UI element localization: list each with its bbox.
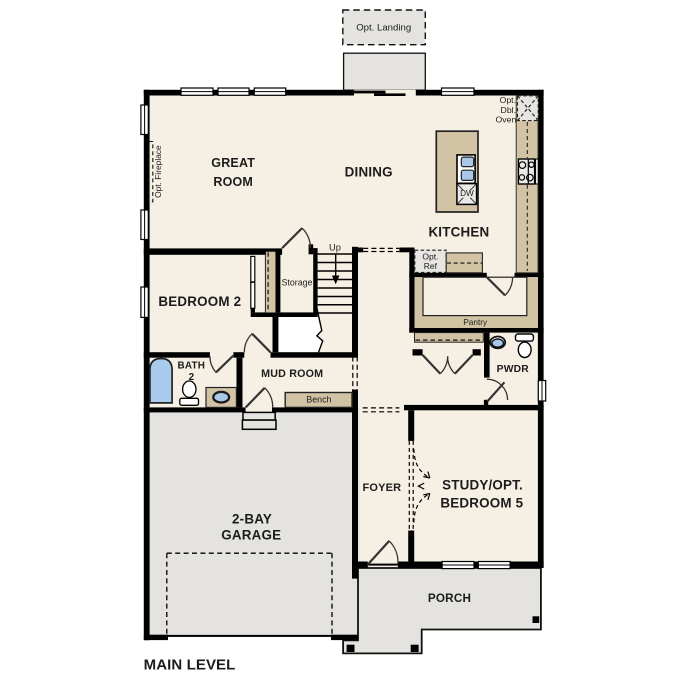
svg-text:DINING: DINING — [345, 164, 393, 179]
svg-text:FOYER: FOYER — [362, 482, 401, 494]
svg-text:MAIN LEVEL: MAIN LEVEL — [144, 657, 236, 674]
svg-text:GREAT: GREAT — [211, 156, 255, 170]
svg-text:BATH: BATH — [178, 360, 206, 371]
svg-text:Opt. Fireplace: Opt. Fireplace — [153, 145, 163, 198]
svg-text:Oven: Oven — [496, 115, 517, 125]
svg-text:Ref: Ref — [424, 261, 438, 271]
svg-text:BEDROOM 5: BEDROOM 5 — [440, 495, 523, 510]
svg-text:GARAGE: GARAGE — [221, 527, 281, 542]
svg-text:Opt.: Opt. — [422, 251, 438, 261]
svg-text:2: 2 — [189, 372, 195, 383]
svg-text:Bench: Bench — [306, 394, 331, 404]
svg-text:Opt.: Opt. — [500, 95, 516, 105]
svg-text:MUD ROOM: MUD ROOM — [261, 368, 323, 380]
svg-text:STUDY/OPT.: STUDY/OPT. — [442, 478, 523, 493]
svg-text:Opt. Landing: Opt. Landing — [356, 23, 411, 34]
svg-text:KITCHEN: KITCHEN — [428, 225, 489, 240]
svg-text:ROOM: ROOM — [213, 175, 253, 189]
svg-text:Up: Up — [329, 242, 341, 252]
svg-text:Pantry: Pantry — [463, 317, 488, 327]
svg-text:DW: DW — [460, 189, 474, 198]
svg-text:PWDR: PWDR — [497, 364, 530, 375]
svg-text:Dbl.: Dbl. — [501, 105, 516, 115]
svg-text:PORCH: PORCH — [428, 592, 471, 605]
svg-text:BEDROOM 2: BEDROOM 2 — [158, 294, 241, 309]
svg-text:2-BAY: 2-BAY — [232, 512, 272, 527]
svg-text:Storage: Storage — [282, 277, 313, 287]
